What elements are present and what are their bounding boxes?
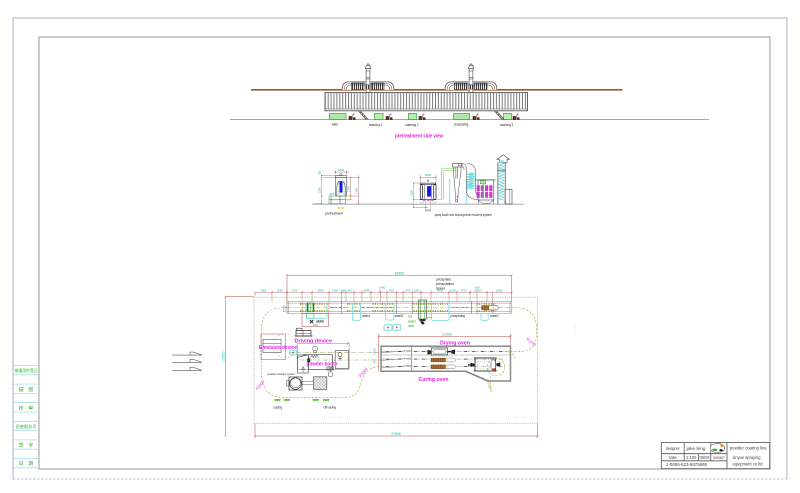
svg-text:1-0006-523-8875966: 1-0006-523-8875966: [666, 462, 708, 467]
svg-text:Loading: Loading: [273, 406, 282, 410]
svg-text:pretreatment side view: pretreatment side view: [395, 133, 444, 139]
svg-text:1500: 1500: [283, 305, 287, 312]
svg-text:Curing oven: Curing oven: [419, 377, 449, 383]
svg-text:washing 3: washing 3: [500, 123, 513, 127]
svg-text:27000: 27000: [391, 432, 401, 436]
svg-text:wash1: wash1: [362, 314, 371, 318]
svg-text:1800: 1800: [425, 173, 432, 177]
svg-text:2350: 2350: [409, 189, 413, 196]
svg-text:750: 750: [373, 359, 377, 364]
svg-text:hot: hot: [408, 315, 413, 319]
svg-text:900: 900: [341, 288, 346, 292]
svg-text:1700: 1700: [291, 288, 298, 292]
svg-text:designer: designer: [666, 446, 680, 451]
svg-text:3750: 3750: [354, 187, 358, 194]
svg-text:phosphate: phosphate: [436, 278, 451, 282]
svg-text:1700: 1700: [460, 288, 467, 292]
svg-text:2200: 2200: [496, 288, 503, 292]
svg-text:2350: 2350: [317, 186, 321, 193]
svg-text:powder booth: powder booth: [307, 361, 338, 367]
svg-text:1:100: 1:100: [686, 455, 696, 460]
svg-text:21000: 21000: [442, 332, 452, 336]
svg-text:300: 300: [317, 170, 321, 175]
svg-text:water: water: [408, 319, 417, 323]
svg-text:1500: 1500: [450, 288, 457, 292]
svg-text:tower: tower: [436, 286, 446, 290]
svg-text:powder recovery system: powder recovery system: [268, 372, 296, 376]
svg-text:校 审: 校 审: [19, 404, 34, 411]
svg-text:900: 900: [389, 288, 394, 292]
svg-text:jake feng: jake feng: [685, 446, 705, 451]
svg-text:1200: 1200: [338, 168, 345, 172]
svg-text:600: 600: [330, 192, 335, 196]
svg-text:powder coating line: powder coating line: [730, 446, 767, 451]
svg-text:1950: 1950: [346, 185, 350, 192]
svg-text:1450: 1450: [332, 288, 339, 292]
svg-text:2250: 2250: [276, 288, 283, 292]
svg-text:400: 400: [426, 208, 431, 212]
svg-text:wash2: wash2: [490, 314, 499, 318]
svg-text:pretreatment: pretreatment: [325, 211, 343, 215]
svg-text:06/04: 06/04: [700, 455, 710, 460]
svg-text:phosphating: phosphating: [454, 123, 469, 127]
svg-text:tank: tank: [408, 324, 414, 328]
svg-text:3000: 3000: [317, 288, 324, 292]
svg-text:1500: 1500: [373, 348, 377, 355]
svg-text:phosphating: phosphating: [451, 314, 466, 318]
svg-text:600: 600: [313, 323, 318, 327]
svg-text:24250: 24250: [395, 272, 405, 276]
svg-text:日 期: 日 期: [19, 461, 34, 467]
svg-text:precipitation: precipitation: [436, 282, 454, 286]
svg-text:washing 2: washing 2: [406, 123, 419, 127]
svg-text:1445: 1445: [363, 288, 370, 292]
svg-text:1500: 1500: [260, 288, 267, 292]
svg-text:15000: 15000: [221, 351, 225, 361]
svg-text:1700: 1700: [404, 288, 411, 292]
svg-text:skin: skin: [332, 123, 339, 127]
svg-text:1260: 1260: [413, 288, 420, 292]
svg-text:Driving device: Driving device: [295, 339, 333, 345]
svg-text:spray booth and monocyclone re: spray booth and monocyclone recovery sys…: [435, 213, 492, 217]
svg-text:xinyue spraying: xinyue spraying: [733, 455, 761, 461]
svg-text:Off loading: Off loading: [324, 406, 337, 410]
svg-text:wash2: wash2: [395, 314, 404, 318]
svg-text:Emulsion device: Emulsion device: [259, 345, 297, 351]
svg-text:1400: 1400: [379, 286, 386, 290]
svg-text:签 字: 签 字: [19, 442, 34, 449]
svg-text:旧底图总号: 旧底图总号: [16, 423, 37, 430]
svg-text:借通用件登记: 借通用件登记: [14, 368, 37, 373]
svg-text:0005607: 0005607: [713, 456, 725, 460]
svg-text:equipment co.ltd: equipment co.ltd: [733, 462, 763, 468]
svg-text:washing 1: washing 1: [369, 123, 382, 127]
svg-text:描 图: 描 图: [19, 386, 34, 393]
svg-text:900: 900: [348, 288, 353, 292]
svg-text:rate: rate: [669, 455, 677, 460]
svg-text:2200: 2200: [475, 288, 482, 292]
